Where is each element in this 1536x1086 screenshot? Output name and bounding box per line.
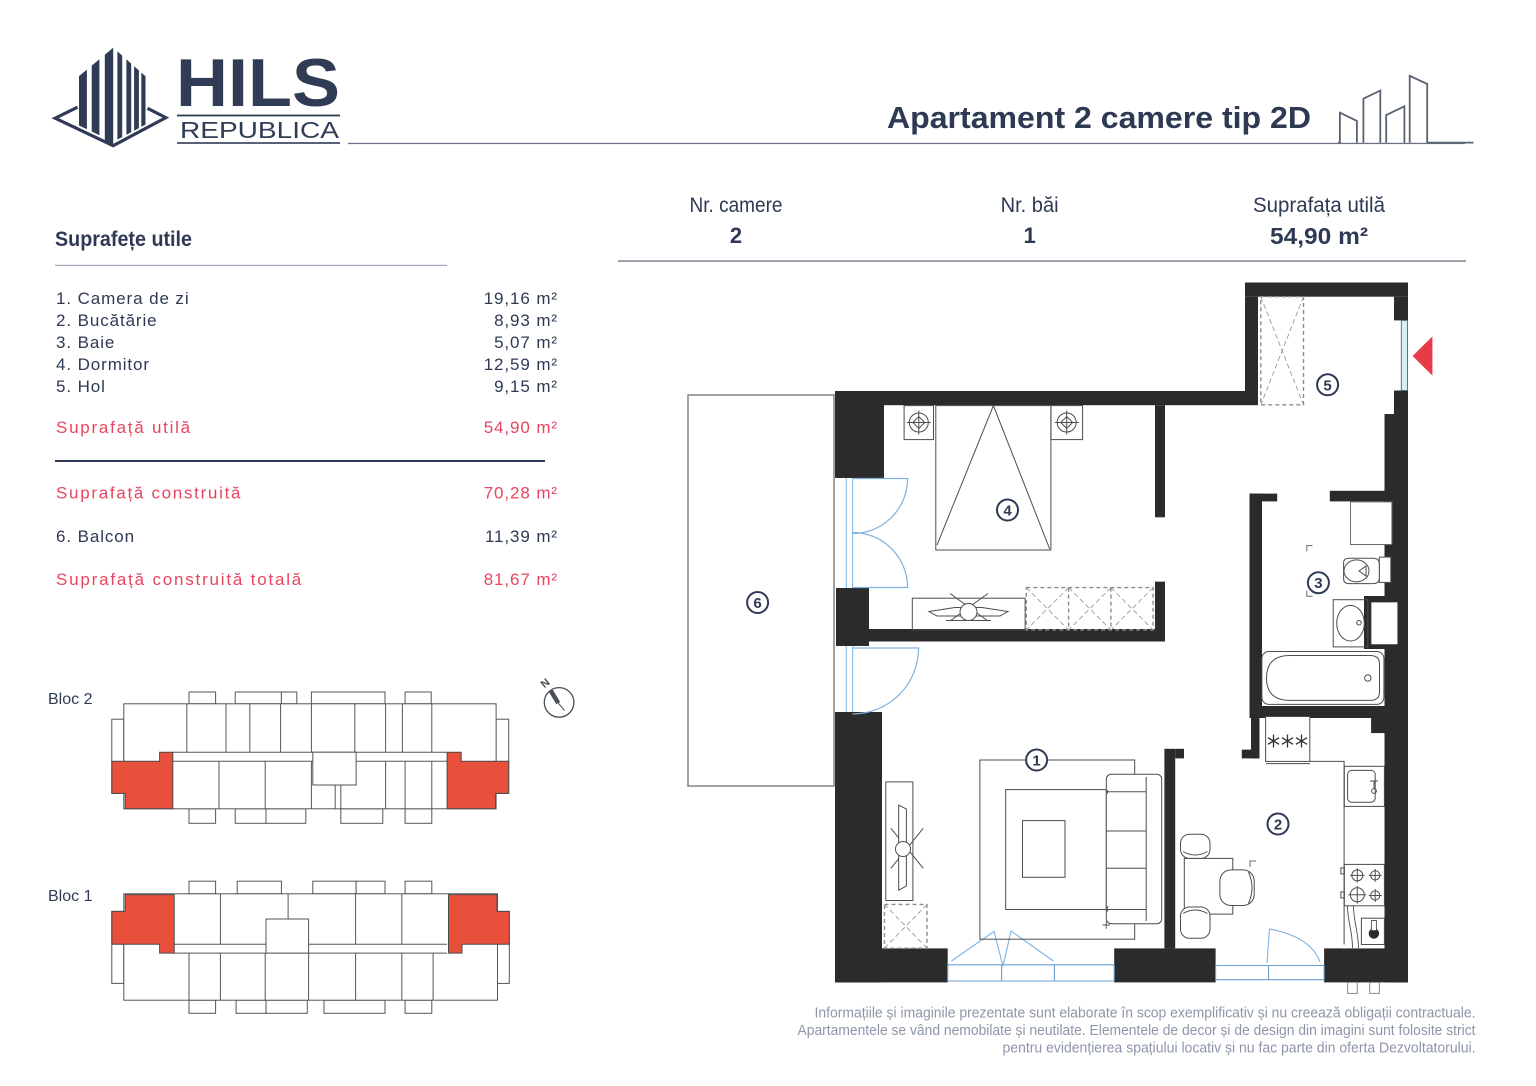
- svg-text:Suprafețe utile: Suprafețe utile: [55, 228, 192, 251]
- svg-text:2: 2: [1274, 817, 1282, 834]
- svg-text:Suprafață construită: Suprafață construită: [56, 484, 242, 503]
- svg-text:4: 4: [1003, 503, 1012, 520]
- svg-text:3. Baie: 3. Baie: [56, 333, 115, 352]
- svg-text:6: 6: [753, 595, 761, 612]
- svg-text:81,67 m²: 81,67 m²: [484, 570, 558, 589]
- svg-text:70,28 m²: 70,28 m²: [484, 484, 558, 503]
- svg-text:1: 1: [1032, 753, 1040, 770]
- svg-text:54,90 m²: 54,90 m²: [1270, 223, 1368, 249]
- svg-text:54,90 m²: 54,90 m²: [484, 418, 558, 437]
- svg-text:pentru evidențierea spațiului: pentru evidențierea spațiului locativ și…: [1003, 1040, 1476, 1057]
- svg-text:Suprafață construită totală: Suprafață construită totală: [56, 570, 303, 589]
- svg-text:Informațiile și imaginile prez: Informațiile și imaginile prezentate sun…: [815, 1005, 1476, 1022]
- svg-text:HILS: HILS: [176, 45, 340, 121]
- svg-text:1: 1: [1023, 223, 1035, 248]
- svg-text:Suprafață utilă: Suprafață utilă: [56, 418, 192, 437]
- svg-text:12,59 m²: 12,59 m²: [484, 355, 558, 374]
- svg-text:Bloc 1: Bloc 1: [48, 888, 93, 905]
- svg-text:REPUBLICA: REPUBLICA: [180, 117, 340, 143]
- svg-text:19,16 m²: 19,16 m²: [484, 289, 558, 308]
- svg-text:Bloc 2: Bloc 2: [48, 691, 93, 708]
- svg-text:N: N: [539, 676, 553, 690]
- svg-text:5,07 m²: 5,07 m²: [494, 333, 558, 352]
- svg-text:6. Balcon: 6. Balcon: [56, 527, 135, 546]
- svg-text:2. Bucătărie: 2. Bucătărie: [56, 311, 158, 330]
- svg-text:5. Hol: 5. Hol: [56, 377, 106, 396]
- svg-text:8,93 m²: 8,93 m²: [494, 311, 558, 330]
- svg-text:Apartament 2 camere tip 2D: Apartament 2 camere tip 2D: [887, 100, 1311, 135]
- svg-text:2: 2: [730, 223, 742, 248]
- svg-text:11,39 m²: 11,39 m²: [485, 527, 558, 546]
- svg-text:Nr. băi: Nr. băi: [1001, 194, 1059, 217]
- svg-text:9,15 m²: 9,15 m²: [494, 377, 558, 396]
- svg-text:5: 5: [1323, 377, 1331, 394]
- svg-text:4. Dormitor: 4. Dormitor: [56, 355, 150, 374]
- svg-text:3: 3: [1314, 575, 1322, 592]
- svg-text:1. Camera de zi: 1. Camera de zi: [56, 289, 190, 308]
- svg-text:Nr. camere: Nr. camere: [690, 194, 783, 217]
- svg-text:Apartamentele se vând nemobila: Apartamentele se vând nemobilate și neut…: [798, 1022, 1477, 1039]
- svg-text:Suprafața utilă: Suprafața utilă: [1253, 194, 1385, 217]
